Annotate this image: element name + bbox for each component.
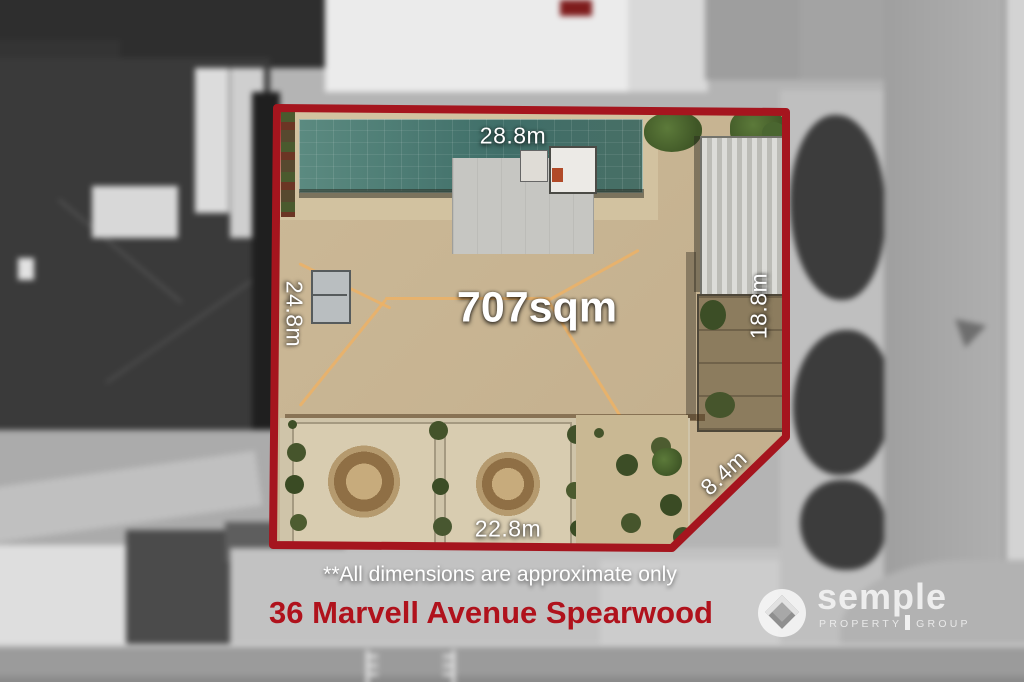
bg-street-tree — [793, 330, 891, 475]
bg-white-driveway — [0, 545, 130, 645]
bg-white-building — [628, 0, 708, 92]
logo-name: semple — [817, 576, 947, 618]
side-garden — [576, 415, 688, 548]
property-address: 36 Marvell Avenue Spearwood — [269, 595, 713, 631]
bg-street-tree — [800, 480, 885, 570]
garden-shrubs — [288, 420, 297, 429]
semple-property-group-logo: semple PROPERTYGROUP — [753, 584, 973, 646]
skylight — [311, 270, 351, 324]
pen-shrub — [705, 392, 735, 418]
main-roof-wing — [560, 252, 703, 418]
road-marking-line — [452, 650, 455, 682]
bg-dark-driveway — [126, 530, 232, 660]
bg-white-patch — [92, 186, 178, 238]
road-marking-tick — [369, 673, 378, 676]
road-marking-tick — [369, 655, 378, 658]
road-marking-tick — [443, 673, 452, 676]
skylight-split — [313, 294, 347, 296]
logo-divider-bar — [905, 615, 910, 630]
dimension-label-top: 28.8m — [480, 123, 546, 150]
garden-strip — [281, 112, 295, 217]
logo-tagline: PROPERTYGROUP — [819, 615, 971, 630]
road-marking-tick — [443, 655, 452, 658]
road-marking-tick — [369, 664, 378, 667]
dimension-label-right: 18.8m — [746, 273, 773, 339]
property-marketing-image: 28.8m 24.8m 18.8m 8.4m 22.8m 707sqm **Al… — [0, 0, 1024, 682]
dimension-label-left: 24.8m — [281, 281, 308, 347]
logo-tagline-group: GROUP — [916, 618, 971, 630]
bg-white-patch — [18, 258, 34, 280]
dimension-label-bottom: 22.8m — [475, 516, 541, 543]
side-garden-shrubs — [594, 428, 604, 438]
garden-bed — [292, 422, 436, 546]
small-structure — [520, 150, 548, 182]
bg-neighbor-roofs — [705, 0, 815, 80]
bg-white-patch — [195, 68, 229, 213]
disclaimer-text: **All dimensions are approximate only — [323, 563, 677, 587]
logo-tagline-property: PROPERTY — [819, 618, 902, 630]
bg-bottom-road-edge — [0, 676, 1024, 682]
roof-gap-shadow — [686, 252, 696, 420]
land-area-label: 707sqm — [457, 284, 617, 333]
bg-red-chimney — [560, 0, 592, 16]
red-equipment — [552, 168, 563, 182]
pen-shrub — [700, 300, 726, 330]
road-marking-tick — [443, 664, 452, 667]
